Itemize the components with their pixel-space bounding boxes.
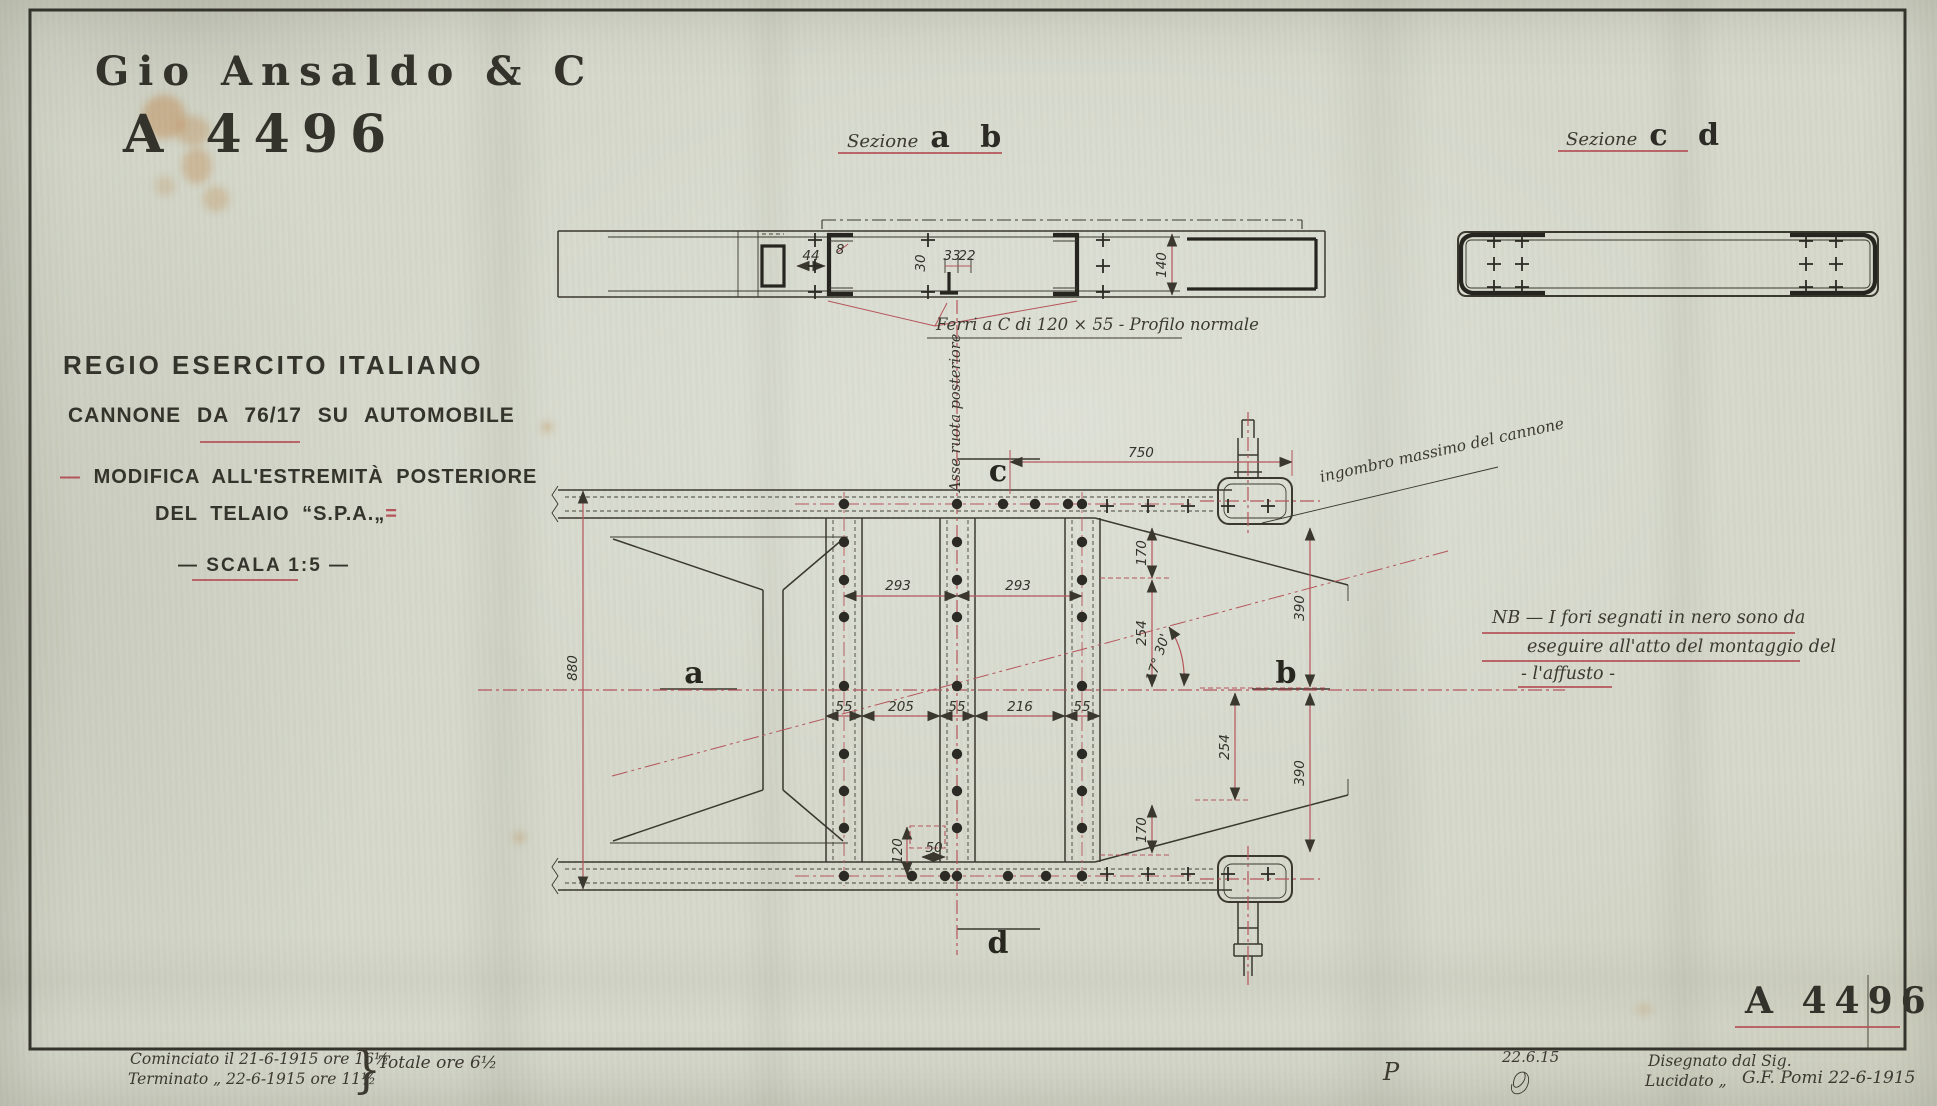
footer-monogram: P	[1383, 1058, 1399, 1086]
dimension-label: 205	[888, 699, 914, 715]
rivet-hole	[940, 871, 950, 881]
rivet-hole	[1063, 499, 1073, 509]
rivet-hole	[839, 612, 849, 622]
view-letter: c	[989, 454, 1007, 489]
rivet-hole	[952, 537, 962, 547]
section-cd-letters: c d	[1649, 118, 1729, 153]
cross-rivet-mark	[1096, 233, 1110, 247]
blueprint-sheet: 7508802932935520555216551702543902543901…	[0, 0, 1937, 1106]
view-letter: d	[988, 926, 1009, 961]
section-ab-label: Sezionea b	[847, 120, 1011, 155]
dimension-label: 8	[836, 242, 845, 258]
rivet-hole	[839, 681, 849, 691]
section-cd-prefix: Sezione	[1566, 129, 1637, 150]
title-frame-text: DEL TELAIO “S.P.A.„	[155, 503, 385, 525]
technical-drawing: 7508802932935520555216551702543902543901…	[0, 0, 1937, 1106]
cross-rivet-mark	[1487, 257, 1501, 271]
rivet-hole	[952, 575, 962, 585]
rivet-hole	[1030, 499, 1040, 509]
dimension-label: 120	[890, 838, 906, 864]
dimension-label: 55	[948, 699, 965, 715]
dimension-label: 30	[913, 254, 929, 271]
cross-rivet-mark	[1141, 499, 1155, 513]
title-subject: CANNONE DA 76/17 SU AUTOMOBILE	[68, 404, 515, 428]
footer-traced-label: Lucidato „	[1645, 1072, 1727, 1090]
title-army: REGIO ESERCITO ITALIANO	[63, 350, 484, 381]
rivet-hole	[907, 871, 917, 881]
rivet-hole	[839, 871, 849, 881]
rivet-hole	[839, 575, 849, 585]
drawing-number-footer: A 4496	[1745, 980, 1934, 1022]
rivet-hole	[1077, 499, 1087, 509]
rivet-hole	[839, 786, 849, 796]
section-cd-label: Sezionec d	[1566, 118, 1729, 153]
rivet-hole	[1077, 612, 1087, 622]
rivet-hole	[1041, 871, 1051, 881]
dimension-label: 55	[1073, 699, 1090, 715]
rivet-hole	[952, 612, 962, 622]
section-ab-letters: a b	[930, 120, 1011, 155]
section-ab-prefix: Sezione	[847, 131, 918, 152]
dimension-label: 254	[1217, 734, 1233, 760]
rivet-hole	[1077, 786, 1087, 796]
annotation-rear-axle-axis: Asse ruota posteriore	[948, 334, 964, 492]
dimension-label: 293	[1005, 578, 1031, 594]
section-ab-view	[558, 220, 1325, 297]
rivet-hole	[952, 749, 962, 759]
view-letter: a	[684, 656, 703, 691]
red-dash: —	[60, 466, 81, 488]
rivet-hole	[952, 786, 962, 796]
drawing-number-header: A 4496	[123, 104, 398, 165]
cross-rivet-mark	[1141, 867, 1155, 881]
footer-signature: G.F. Pomi 22-6-1915	[1742, 1068, 1915, 1088]
dimension-label: 880	[565, 655, 581, 681]
cross-rivet-mark	[808, 233, 822, 247]
dimension-label: 170	[1134, 540, 1150, 566]
rivet-hole	[1077, 871, 1087, 881]
company-title: Gio Ansaldo & C	[95, 48, 594, 95]
cross-rivet-mark	[1799, 257, 1813, 271]
dimension-label: 140	[1154, 252, 1170, 278]
cross-rivet-mark	[921, 233, 935, 247]
red-suffix: =	[385, 503, 398, 525]
rivet-hole	[1077, 823, 1087, 833]
dimension-label: 390	[1292, 760, 1308, 786]
footer-finished: Terminato „ 22-6-1915 ore 11½	[128, 1070, 376, 1088]
dimension-label: 750	[1128, 445, 1154, 461]
scale-label: — SCALA 1:5 —	[178, 555, 350, 577]
footer-date-signature: 22.6.15	[1502, 1048, 1559, 1066]
rivet-hole	[839, 499, 849, 509]
rivet-hole	[839, 749, 849, 759]
dimension-label: 50	[925, 840, 942, 856]
title-modification-text: MODIFICA ALL'ESTREMITÀ POSTERIORE	[94, 466, 538, 488]
title-modification-line2: DEL TELAIO “S.P.A.„=	[155, 503, 398, 526]
footer-brace: }	[352, 1039, 381, 1098]
note-line2: eseguire all'atto del montaggio del	[1527, 637, 1836, 657]
dimension-label: 55	[835, 699, 852, 715]
cross-rivet-mark	[1096, 259, 1110, 273]
rivet-hole	[1077, 681, 1087, 691]
view-letter: b	[1276, 656, 1297, 691]
note-line1: NB — I fori segnati in nero sono da	[1492, 608, 1805, 628]
dimension-labels: 7508802932935520555216551702543902543901…	[565, 242, 1308, 961]
cross-rivet-mark	[1515, 257, 1529, 271]
cross-rivet-mark	[1829, 257, 1843, 271]
centerlines-red	[478, 300, 1565, 985]
rivet-hole	[839, 537, 849, 547]
dimension-label: 254	[1134, 620, 1150, 646]
footer-total-hours: Totale ore 6½	[378, 1053, 497, 1073]
note-line3: - l'affusto -	[1521, 664, 1615, 684]
red-underlines	[192, 151, 1900, 1027]
rivet-hole	[952, 681, 962, 691]
rivet-hole	[1077, 749, 1087, 759]
rivet-hole	[1003, 871, 1013, 881]
dimension-label: 170	[1134, 817, 1150, 843]
rivet-hole	[998, 499, 1008, 509]
dimension-label: 216	[1007, 699, 1033, 715]
annotation-channel-profile: Ferri a C di 120 × 55 - Profilo normale	[936, 315, 1259, 334]
dimension-label: 22	[958, 248, 975, 264]
rivet-hole	[839, 823, 849, 833]
rivet-hole	[952, 499, 962, 509]
rivet-hole	[952, 823, 962, 833]
rivet-hole	[952, 871, 962, 881]
dimension-label: 44	[802, 248, 819, 264]
rivet-hole	[1077, 575, 1087, 585]
dimension-label: 390	[1292, 595, 1308, 621]
rivet-hole	[1077, 537, 1087, 547]
dimension-label: 293	[885, 578, 911, 594]
title-modification-line1: — MODIFICA ALL'ESTREMITÀ POSTERIORE	[60, 466, 537, 489]
sheet-border	[30, 10, 1905, 1049]
footer-started: Cominciato il 21-6-1915 ore 16½	[130, 1050, 389, 1068]
